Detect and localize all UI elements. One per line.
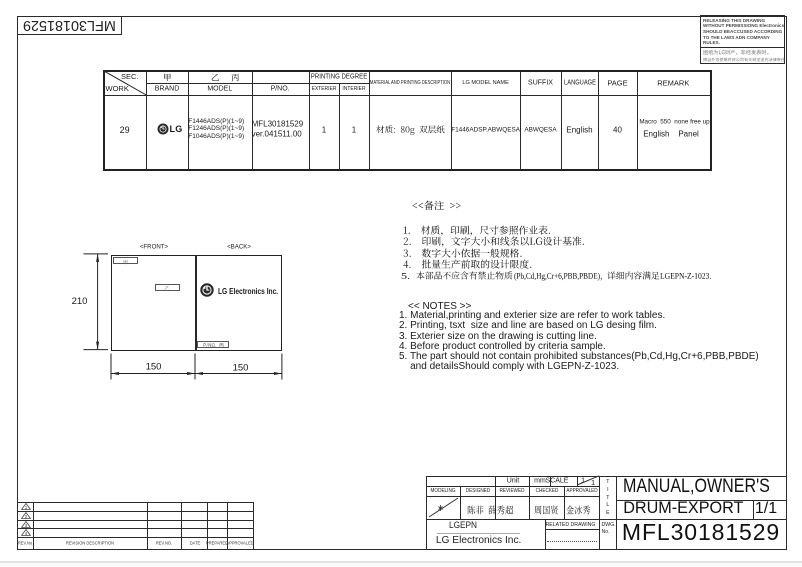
svg-text:1: 1 (581, 476, 585, 485)
svg-text:1: 1 (591, 478, 595, 486)
